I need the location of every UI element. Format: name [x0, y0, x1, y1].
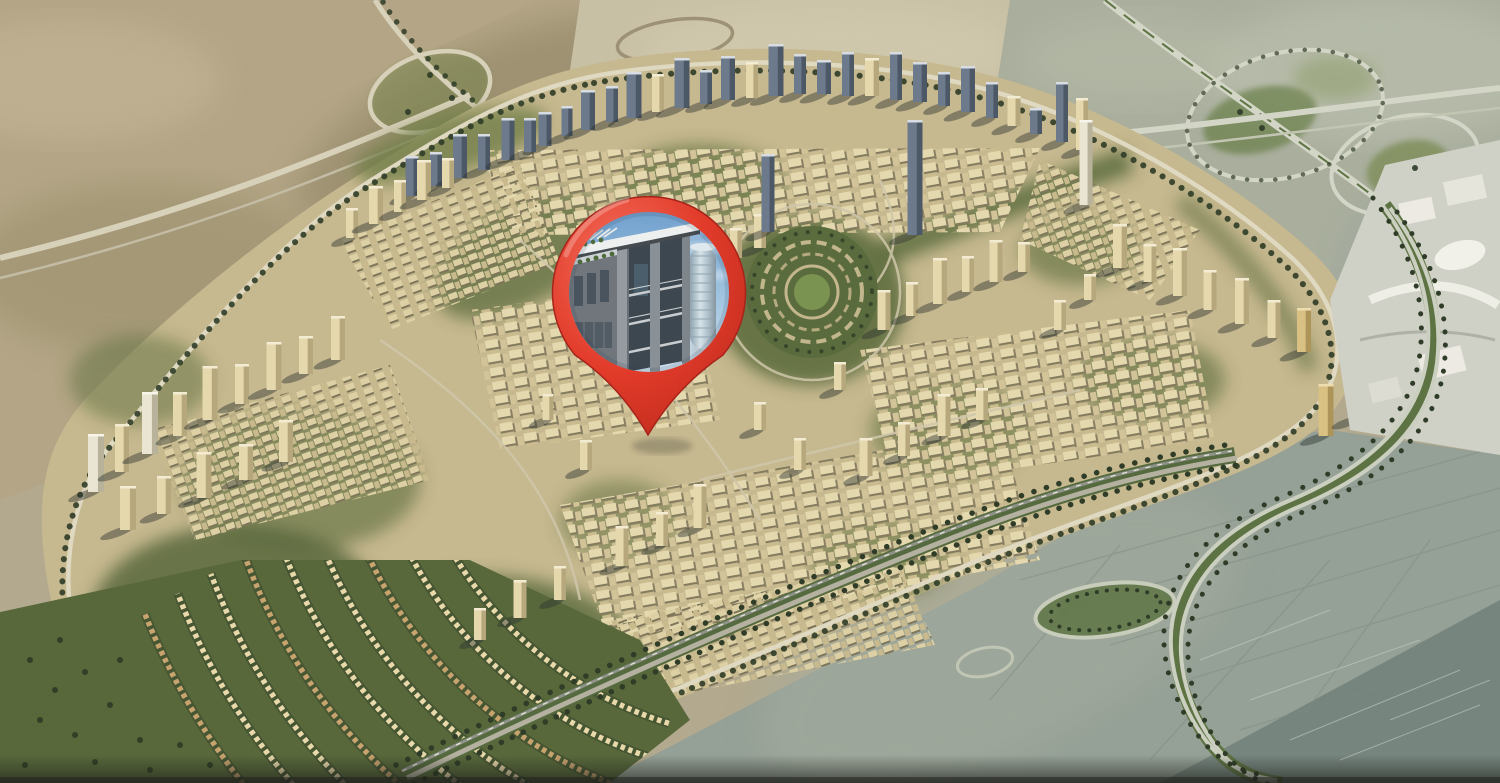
tree-dot: [52, 687, 58, 693]
tree-dot: [82, 669, 88, 675]
tree-dot: [405, 109, 411, 115]
bottom-edge-strip: [0, 777, 1500, 783]
tree-dot: [1412, 165, 1418, 171]
tree-dot: [37, 717, 43, 723]
tree-dot: [57, 637, 63, 643]
tree-dot: [107, 702, 113, 708]
tree-dot: [137, 737, 143, 743]
tree-dot: [1259, 125, 1265, 131]
tree-dot: [427, 72, 433, 78]
tree-dot: [27, 657, 33, 663]
aerial-map: Highlighted property location: [0, 0, 1500, 783]
tree-dot: [72, 732, 78, 738]
screenshot-frame: Highlighted property location: [0, 0, 1500, 783]
tree-dot: [117, 657, 123, 663]
tree-dot: [177, 742, 183, 748]
tree-dot: [449, 95, 455, 101]
photo-cylindrical-tower: [690, 243, 716, 349]
tree-dot: [1237, 109, 1243, 115]
